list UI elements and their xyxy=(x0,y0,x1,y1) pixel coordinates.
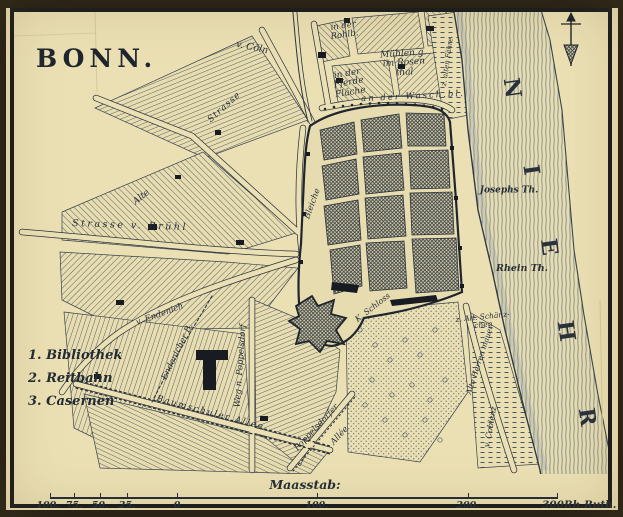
legend-item: 3. Casernen xyxy=(28,394,122,409)
label-in-der-rohlb: in der Rohlb. xyxy=(329,20,359,42)
map-legend: 1. Bibliothek 2. Reitbahn 3. Casernen xyxy=(28,348,122,417)
river-letter: R xyxy=(573,406,601,428)
map-title: BONN. xyxy=(36,44,157,73)
label-rhein-th: Rhein Th. xyxy=(496,264,548,274)
river-letter: E xyxy=(535,237,563,257)
scale-caption: Maasstab: xyxy=(240,477,370,492)
legend-item: 2. Reitbahn xyxy=(28,371,122,386)
bonn-map: BONN. N I E H R v. Cöln in der Rohlb. Mü… xyxy=(0,0,623,517)
legend-item: 1. Bibliothek xyxy=(28,348,122,363)
photo-edge-left xyxy=(0,0,6,517)
photo-edge-bottom xyxy=(0,510,623,517)
city-blocks xyxy=(320,113,459,294)
photo-edge-top xyxy=(0,0,623,8)
river-letter: N xyxy=(498,76,527,100)
river-letter: H xyxy=(552,319,581,343)
photo-edge-right xyxy=(618,0,623,517)
label-josephs-th: Josephs Th. xyxy=(480,186,538,195)
label-muehlen-rosenthal: Mühlen g. im Rosen thal xyxy=(380,48,428,79)
